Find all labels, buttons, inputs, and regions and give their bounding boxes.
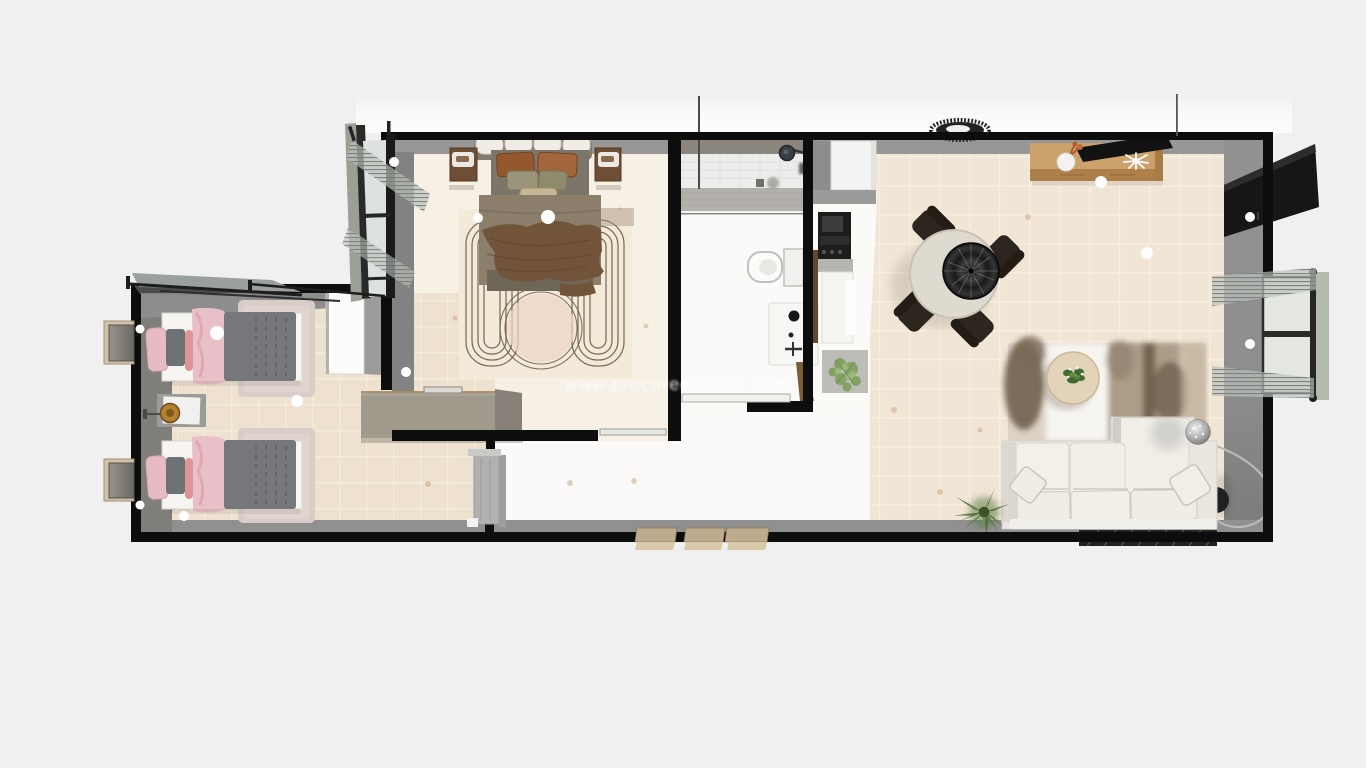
svg-text:www.procureestates.com: www.procureestates.com [564, 374, 789, 394]
